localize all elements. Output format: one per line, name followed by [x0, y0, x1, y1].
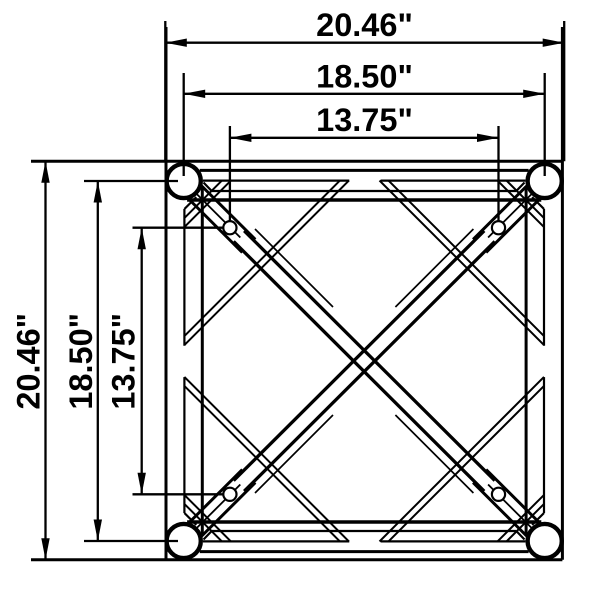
- svg-text:20.46": 20.46": [316, 7, 413, 43]
- svg-text:20.46": 20.46": [11, 313, 47, 410]
- svg-text:13.75": 13.75": [316, 102, 413, 138]
- svg-text:13.75": 13.75": [106, 313, 142, 410]
- svg-text:18.50": 18.50": [63, 313, 99, 410]
- svg-text:18.50": 18.50": [316, 59, 413, 95]
